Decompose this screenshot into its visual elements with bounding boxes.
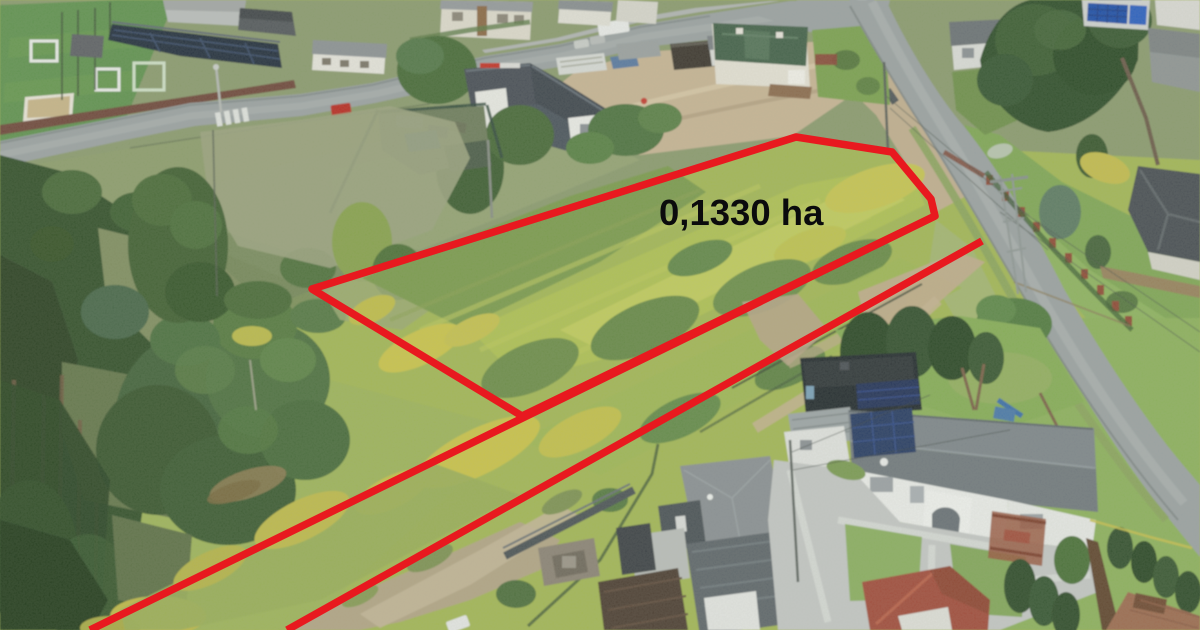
svg-text:0,1330 ha: 0,1330 ha <box>659 192 824 233</box>
